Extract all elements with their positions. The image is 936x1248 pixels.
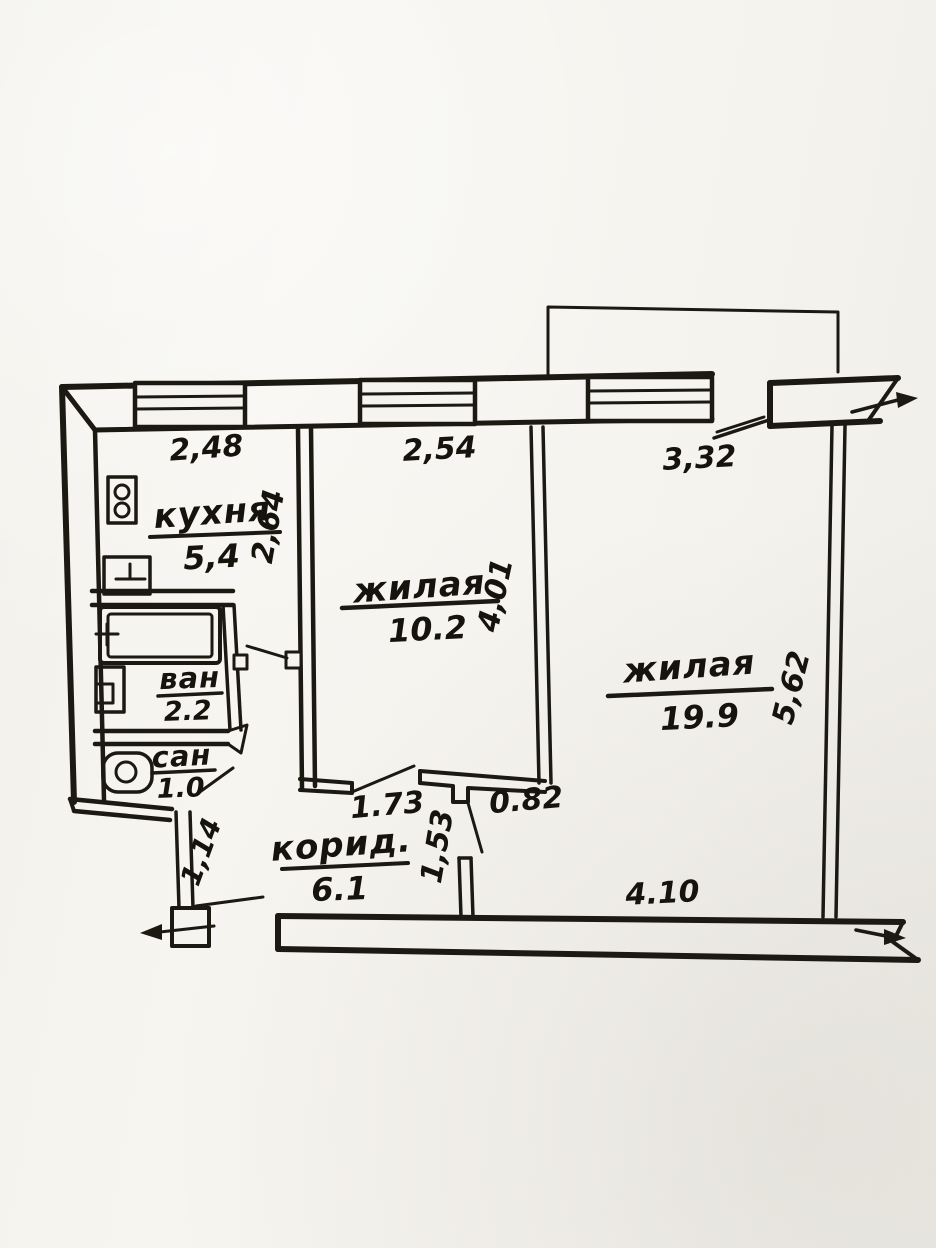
room-area-wc: 1.0: [156, 772, 205, 805]
bath-door-swing: [247, 646, 287, 658]
room-area-corridor: 6.1: [311, 869, 369, 909]
wall-kitchen-partition: [286, 428, 315, 788]
floor-plan-sheet: кухня 5,4 жилая 10.2 жилая 19.9 ван 2.2 …: [0, 0, 936, 1248]
balcony-outline: [548, 307, 838, 378]
wall-right: [823, 426, 845, 917]
bathtub-icon: [96, 607, 220, 663]
dim-corridor-top: 1.73: [349, 785, 426, 826]
stove-icon: [108, 477, 136, 523]
dim-living-small-width: 2,54: [402, 430, 478, 469]
dim-living-large-depth: 5,62: [766, 648, 818, 728]
wall-rooms-partition: [531, 427, 551, 783]
room-label-bath: ван: [159, 660, 221, 696]
wall-bottom: [278, 916, 918, 960]
toilet-icon: [103, 753, 152, 792]
window-living-large-icon: [588, 377, 712, 421]
room-wc-labels: сан 1.0: [151, 737, 215, 804]
entry-door-swing: [196, 897, 263, 906]
room-area-living-small: 10.2: [387, 608, 468, 650]
wall-left: [62, 387, 104, 802]
living-large-door-swing: [468, 803, 482, 852]
wall-corridor-stub: [459, 858, 473, 917]
balcony-door-swing: [714, 417, 769, 438]
room-area-bath: 2.2: [163, 695, 212, 728]
dim-living-large-bottom: 4.10: [624, 874, 701, 913]
room-corridor-labels: корид. 6.1: [270, 820, 413, 909]
window-living-small-icon: [360, 380, 475, 424]
room-living-large-labels: жилая 19.9: [608, 642, 772, 738]
room-bath-labels: ван 2.2: [158, 660, 222, 728]
wall-top-right-segment: [770, 378, 898, 426]
wall-bath-right: [223, 605, 247, 730]
window-kitchen-icon: [135, 383, 245, 427]
dim-entry-passage: 1,14: [174, 814, 229, 890]
room-area-kitchen: 5,4: [182, 537, 241, 578]
dim-living-large-top: 3,32: [662, 439, 738, 478]
dim-living-small-door: 0.82: [488, 780, 565, 821]
kitchen-sink-icon: [104, 557, 150, 594]
floor-plan-canvas: кухня 5,4 жилая 10.2 жилая 19.9 ван 2.2 …: [0, 0, 936, 1248]
room-area-living-large: 19.9: [659, 696, 740, 738]
dim-kitchen-width: 2,48: [168, 428, 244, 468]
room-label-living-large: жилая: [620, 642, 757, 691]
